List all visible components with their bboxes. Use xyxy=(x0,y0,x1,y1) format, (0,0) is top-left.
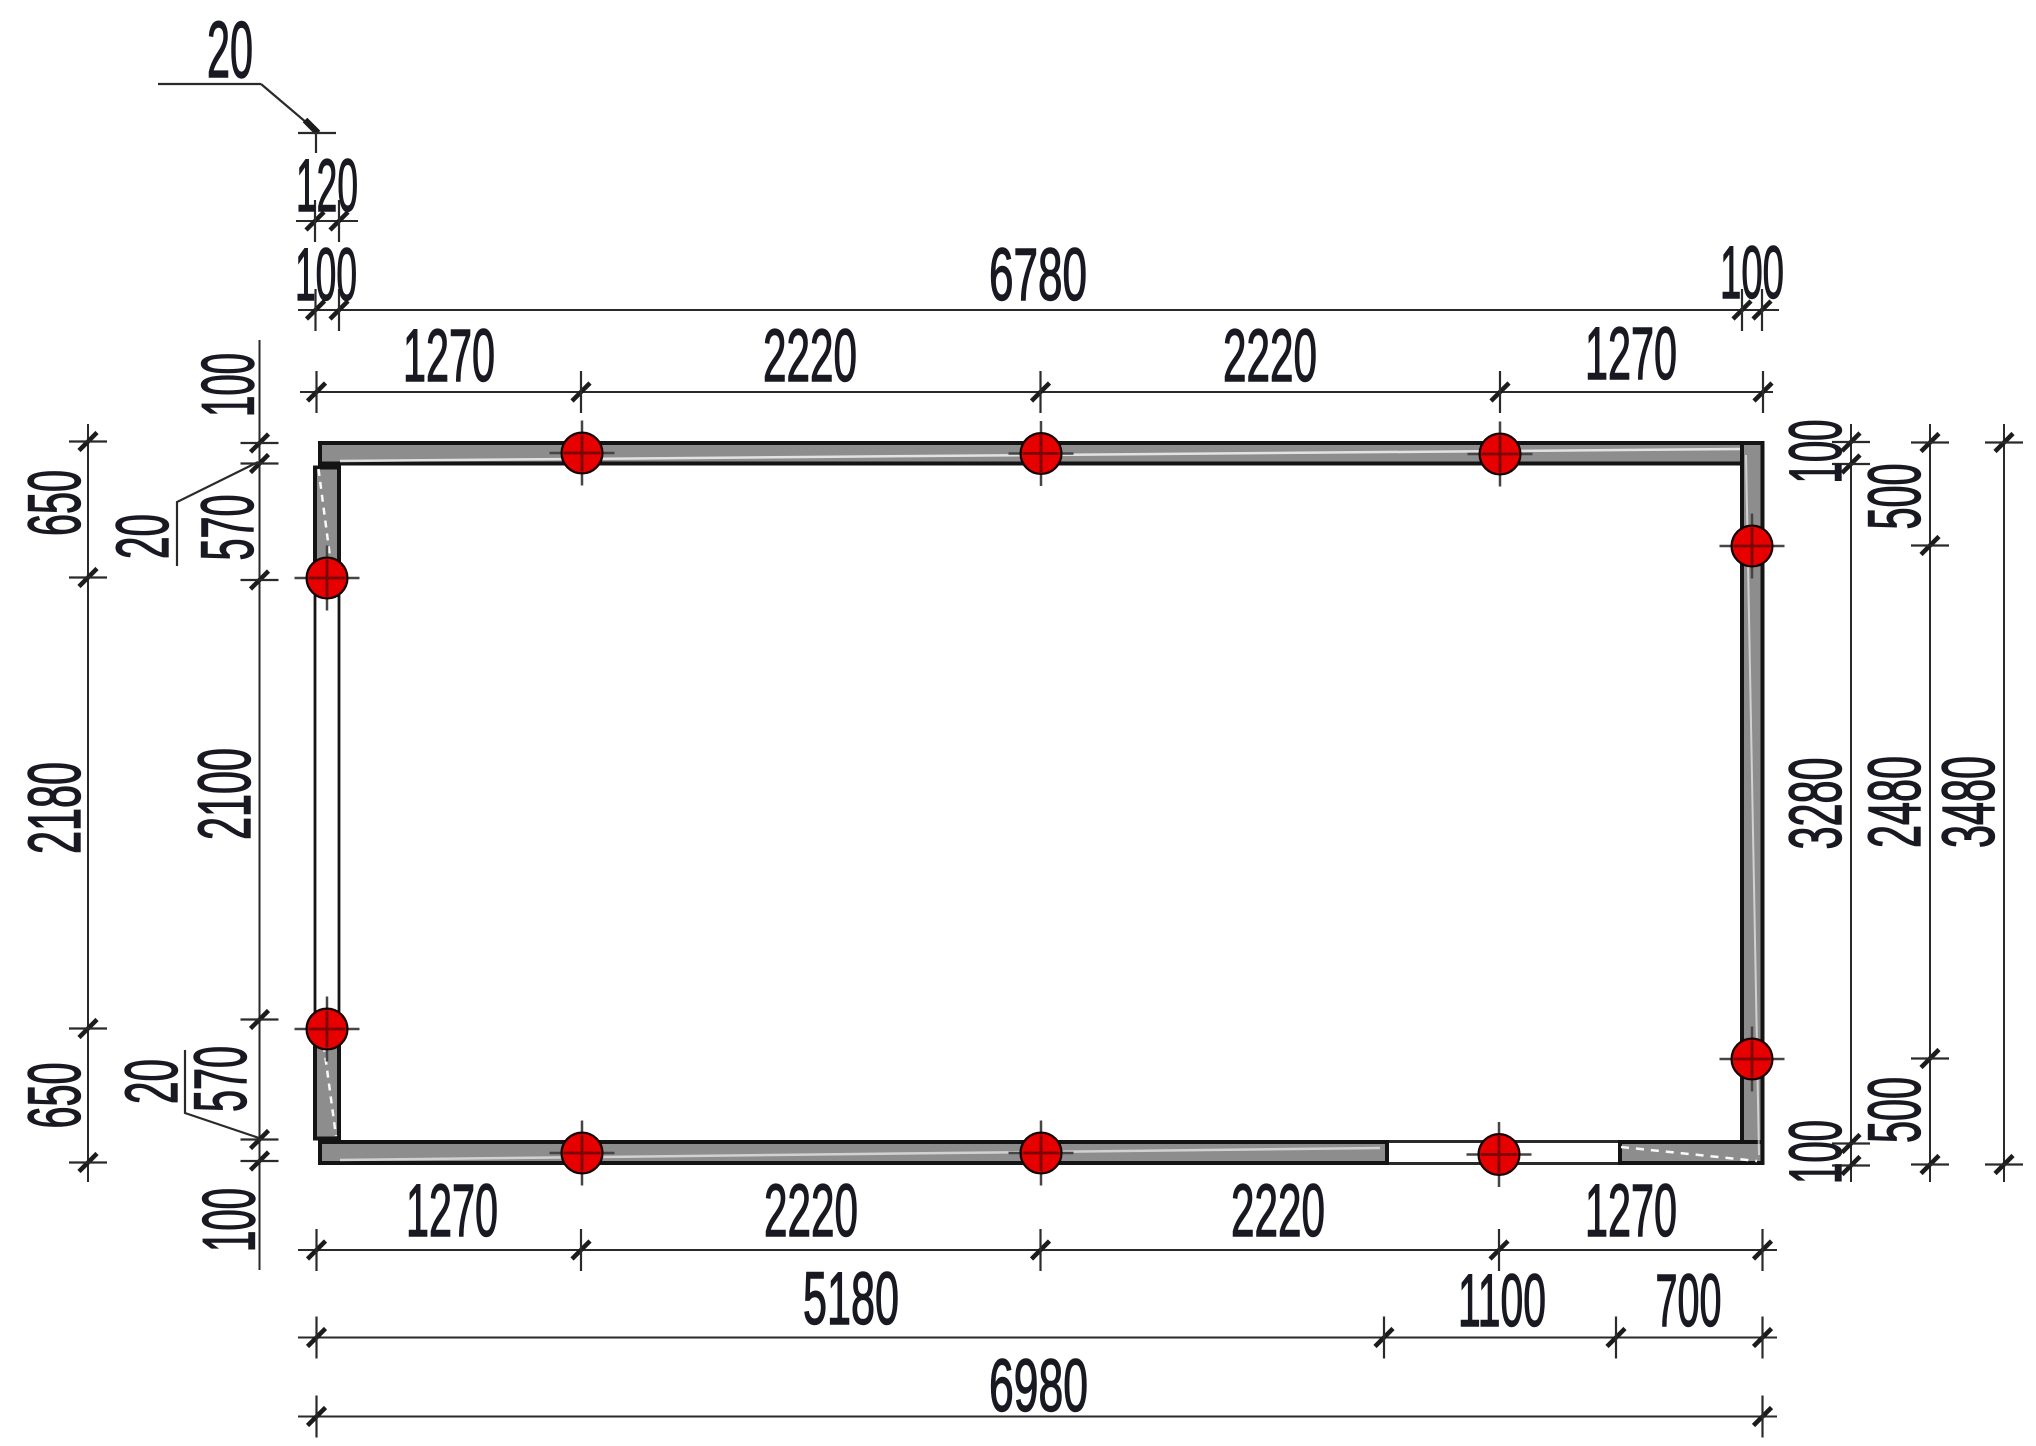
svg-text:3280: 3280 xyxy=(1774,758,1857,850)
svg-text:700: 700 xyxy=(1656,1259,1722,1342)
svg-text:2220: 2220 xyxy=(763,314,857,397)
svg-text:6780: 6780 xyxy=(989,233,1087,316)
svg-text:1270: 1270 xyxy=(406,1169,498,1252)
svg-text:5180: 5180 xyxy=(803,1257,899,1340)
svg-text:100: 100 xyxy=(295,233,357,316)
svg-text:6980: 6980 xyxy=(989,1344,1088,1427)
svg-text:500: 500 xyxy=(1853,464,1936,530)
svg-text:100: 100 xyxy=(1720,231,1784,314)
svg-text:2220: 2220 xyxy=(1231,1169,1325,1252)
svg-text:650: 650 xyxy=(13,1063,96,1129)
svg-text:1270: 1270 xyxy=(1585,1169,1677,1252)
svg-text:2220: 2220 xyxy=(1223,314,1317,397)
svg-text:2220: 2220 xyxy=(764,1169,858,1252)
svg-text:20: 20 xyxy=(101,514,184,559)
svg-text:1270: 1270 xyxy=(1585,312,1677,395)
svg-text:120: 120 xyxy=(296,144,358,227)
svg-text:20: 20 xyxy=(110,1059,193,1104)
svg-text:2180: 2180 xyxy=(13,762,96,854)
svg-text:100: 100 xyxy=(1774,1120,1857,1184)
svg-text:1270: 1270 xyxy=(403,314,495,397)
svg-text:1100: 1100 xyxy=(1458,1259,1546,1342)
svg-text:3480: 3480 xyxy=(1927,756,2010,848)
svg-text:500: 500 xyxy=(1853,1077,1936,1143)
svg-text:20: 20 xyxy=(207,5,253,94)
svg-text:650: 650 xyxy=(13,470,96,536)
svg-text:100: 100 xyxy=(188,1188,271,1252)
svg-text:100: 100 xyxy=(187,353,270,417)
svg-text:2100: 2100 xyxy=(183,748,266,840)
svg-text:570: 570 xyxy=(186,495,269,561)
svg-text:100: 100 xyxy=(1774,420,1857,484)
svg-text:2480: 2480 xyxy=(1853,756,1936,848)
